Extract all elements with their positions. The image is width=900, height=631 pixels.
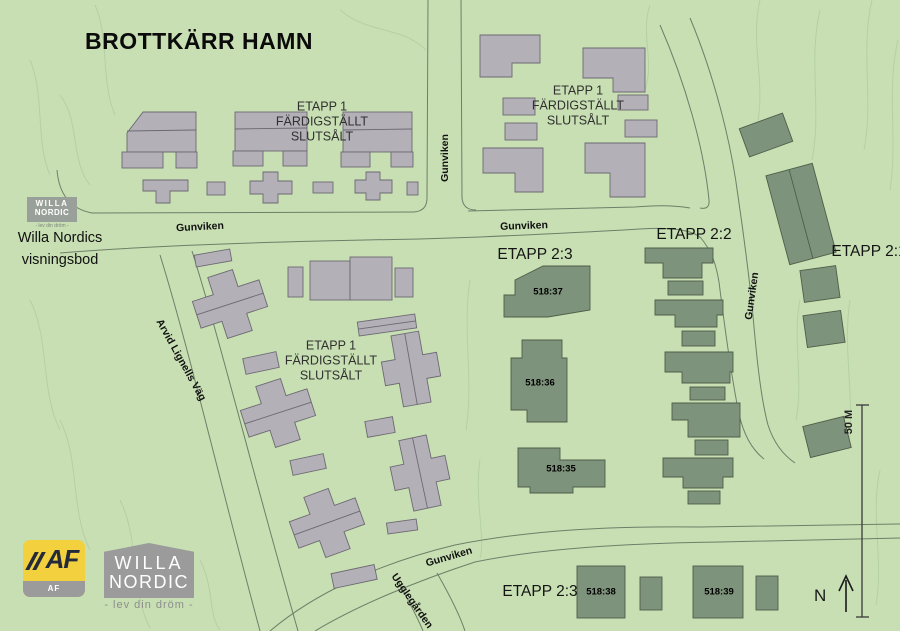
page-title: BROTTKÄRR HAMN (85, 28, 313, 55)
willa-nordic-tagline: - lev din dröm - (96, 599, 202, 611)
label-etapp-2-1: ETAPP 2:1 (831, 243, 900, 261)
north-arrow-icon (839, 576, 853, 612)
roads (57, 0, 900, 631)
willa-nordic-small-tagline: - lev din dröm - (27, 223, 77, 229)
scale-bar (856, 405, 869, 617)
road-gunviken-upper-east (468, 206, 690, 211)
north-label: N (814, 586, 826, 606)
af-monogram: AF (23, 544, 85, 575)
contour-lines (30, 0, 898, 630)
site-plan: BROTTKÄRR HAMN ETAPP 1 FÄRDIGSTÄLLT SLUT… (0, 0, 900, 631)
map-canvas (0, 0, 900, 631)
road-right-north-left-edge (660, 25, 709, 208)
street-gunviken-north: Gunviken (439, 134, 451, 182)
plot-518-37: 518:37 (533, 287, 563, 298)
street-gunviken-west: Gunviken (176, 220, 224, 234)
etapp1-label-center: ETAPP 1 FÄRDIGSTÄLLT SLUTSÅLT (285, 339, 377, 384)
road-ugglegarden-right (437, 573, 465, 631)
plot-518-39: 518:39 (704, 587, 734, 598)
af-gruppen-logo: AF AF GRUPPEN (23, 540, 85, 597)
road-vertical-left-edge (414, 0, 428, 212)
etapp1-label-northeast: ETAPP 1 FÄRDIGSTÄLLT SLUTSÅLT (532, 84, 624, 129)
label-etapp-2-3-south: ETAPP 2:3 (502, 583, 577, 601)
road-vertical-right-edge (461, 0, 476, 210)
label-etapp-2-2: ETAPP 2:2 (656, 226, 731, 244)
scale-bar-label: 50 M (843, 410, 855, 434)
plot-518-35: 518:35 (546, 464, 576, 475)
buildings-etapp2-green (504, 113, 851, 618)
willa-nordic-logo: WILLA NORDIC (104, 543, 194, 598)
willa-nordic-small-logo: WILLA NORDIC (27, 197, 77, 222)
plot-518-36: 518:36 (525, 378, 555, 389)
plot-518-38: 518:38 (586, 587, 616, 598)
etapp1-label-northwest: ETAPP 1 FÄRDIGSTÄLLT SLUTSÅLT (276, 100, 368, 145)
label-etapp-2-3: ETAPP 2:3 (497, 246, 572, 264)
visningsbod-label: Willa Nordics visningsbod (18, 227, 103, 271)
af-gruppen-band: AF GRUPPEN (23, 581, 85, 597)
street-gunviken-mid: Gunviken (500, 219, 548, 233)
